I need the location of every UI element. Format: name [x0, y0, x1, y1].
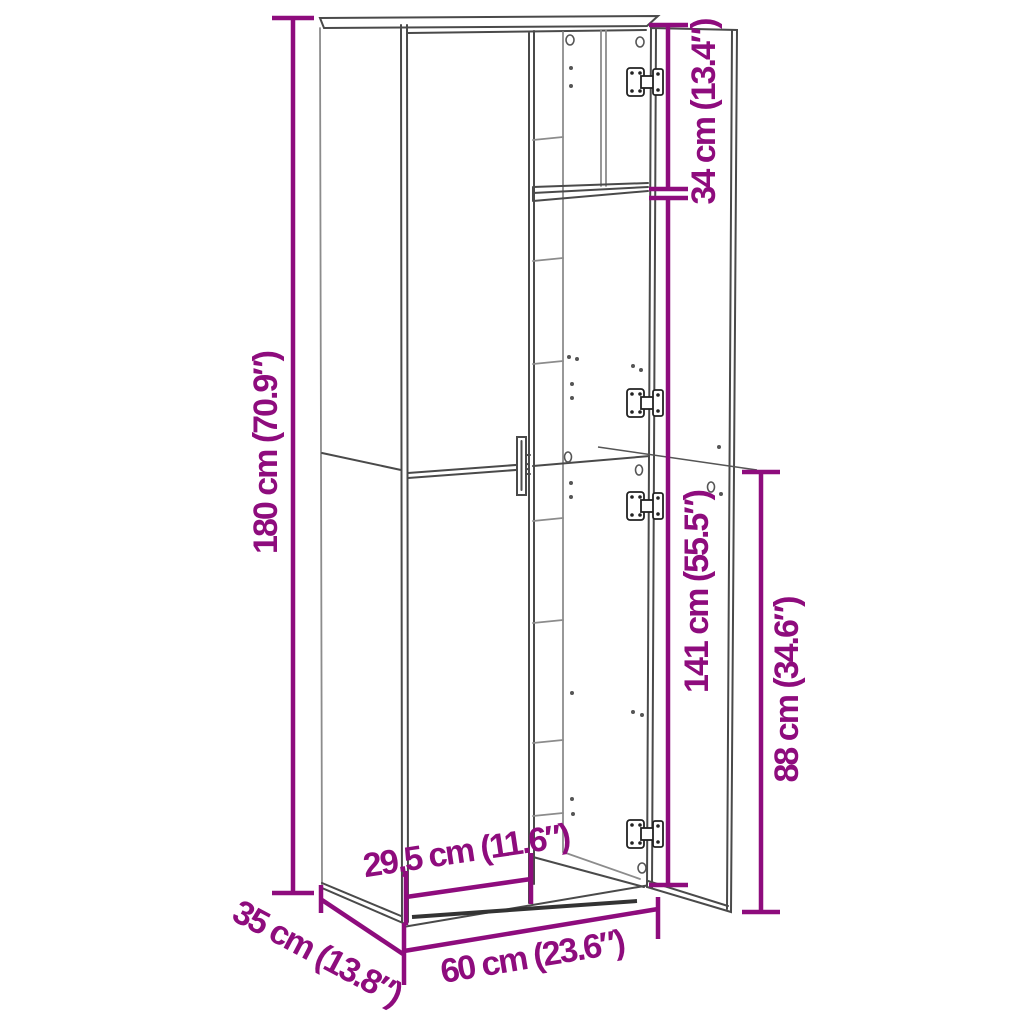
cabinet-drawing: 180 cm (70.9″) 34 cm (13.4″) 141 cm (55.… [0, 0, 1024, 1024]
cabinet-top-face [320, 16, 658, 28]
door-top-edge [408, 30, 646, 33]
hinge-icon [627, 389, 663, 417]
width-label: 60 cm (23.6″) [438, 923, 627, 991]
cabinet-front-left-edge [401, 25, 408, 922]
depth-label: 35 cm (13.8″) [226, 893, 408, 1014]
back-corner-edge [601, 30, 606, 186]
cabinet-left-edge [320, 28, 322, 888]
top-shelf [533, 183, 648, 201]
door-pin-dot [717, 445, 721, 449]
lower-section-label: 88 cm (34.6″) [768, 597, 806, 783]
middle-shelf [533, 456, 650, 466]
shelf-position-lines [533, 137, 563, 816]
height-label: 180 cm (70.9″) [247, 351, 285, 554]
hinge-icon [627, 68, 663, 96]
door-split-lines [322, 453, 529, 478]
plinth-shadow-line [412, 901, 637, 917]
dimension-diagram: 180 cm (70.9″) 34 cm (13.4″) 141 cm (55.… [0, 0, 1024, 1024]
closed-door-right-edge [529, 31, 534, 903]
top-section-label: 34 cm (13.4″) [685, 19, 723, 205]
interior-label: 141 cm (55.5″) [678, 490, 716, 693]
hinge-icon [627, 492, 663, 520]
cabinet-interior [533, 30, 650, 887]
opening-width-label: 29,5 cm (11.6″) [361, 817, 572, 885]
hinge-icon [627, 820, 663, 848]
door-cam-hole [708, 482, 715, 492]
door-pin-dot [719, 492, 723, 496]
cabinet-bottom-left-edge [322, 883, 403, 923]
closed-doors [322, 31, 534, 903]
